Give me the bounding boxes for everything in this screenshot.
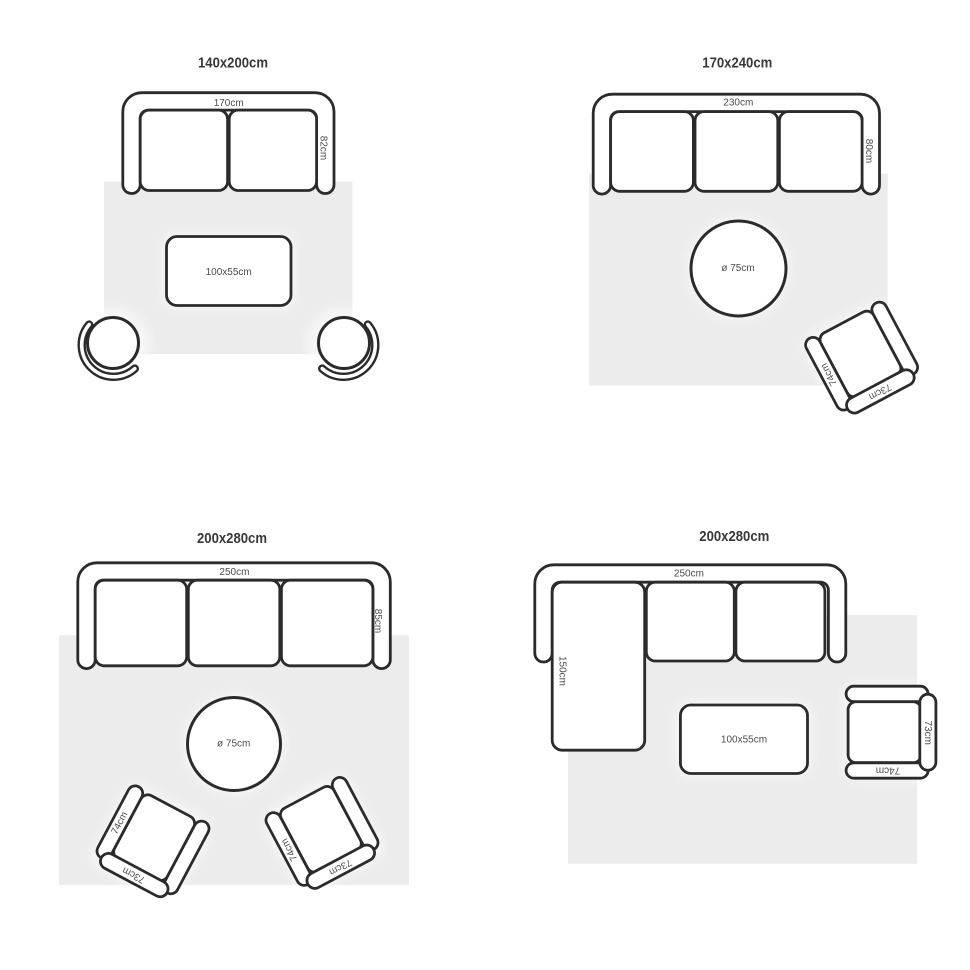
- svg-text:250cm: 250cm: [674, 568, 704, 579]
- svg-text:ø 75cm: ø 75cm: [721, 263, 754, 274]
- svg-text:250cm: 250cm: [219, 567, 249, 578]
- svg-text:82cm: 82cm: [317, 136, 328, 160]
- svg-text:230cm: 230cm: [723, 98, 753, 109]
- svg-text:100x55cm: 100x55cm: [721, 734, 767, 745]
- svg-text:170cm: 170cm: [214, 98, 244, 109]
- svg-text:200x280cm: 200x280cm: [197, 531, 267, 547]
- svg-text:85cm: 85cm: [372, 609, 383, 633]
- svg-text:73cm: 73cm: [922, 720, 933, 744]
- svg-text:ø 75cm: ø 75cm: [217, 738, 250, 749]
- svg-text:80cm: 80cm: [863, 139, 874, 163]
- svg-text:150cm: 150cm: [556, 656, 567, 686]
- svg-text:170x240cm: 170x240cm: [702, 56, 772, 72]
- svg-text:74cm: 74cm: [876, 765, 900, 776]
- svg-text:100x55cm: 100x55cm: [206, 267, 252, 278]
- svg-text:140x200cm: 140x200cm: [198, 56, 268, 72]
- svg-text:200x280cm: 200x280cm: [699, 529, 769, 545]
